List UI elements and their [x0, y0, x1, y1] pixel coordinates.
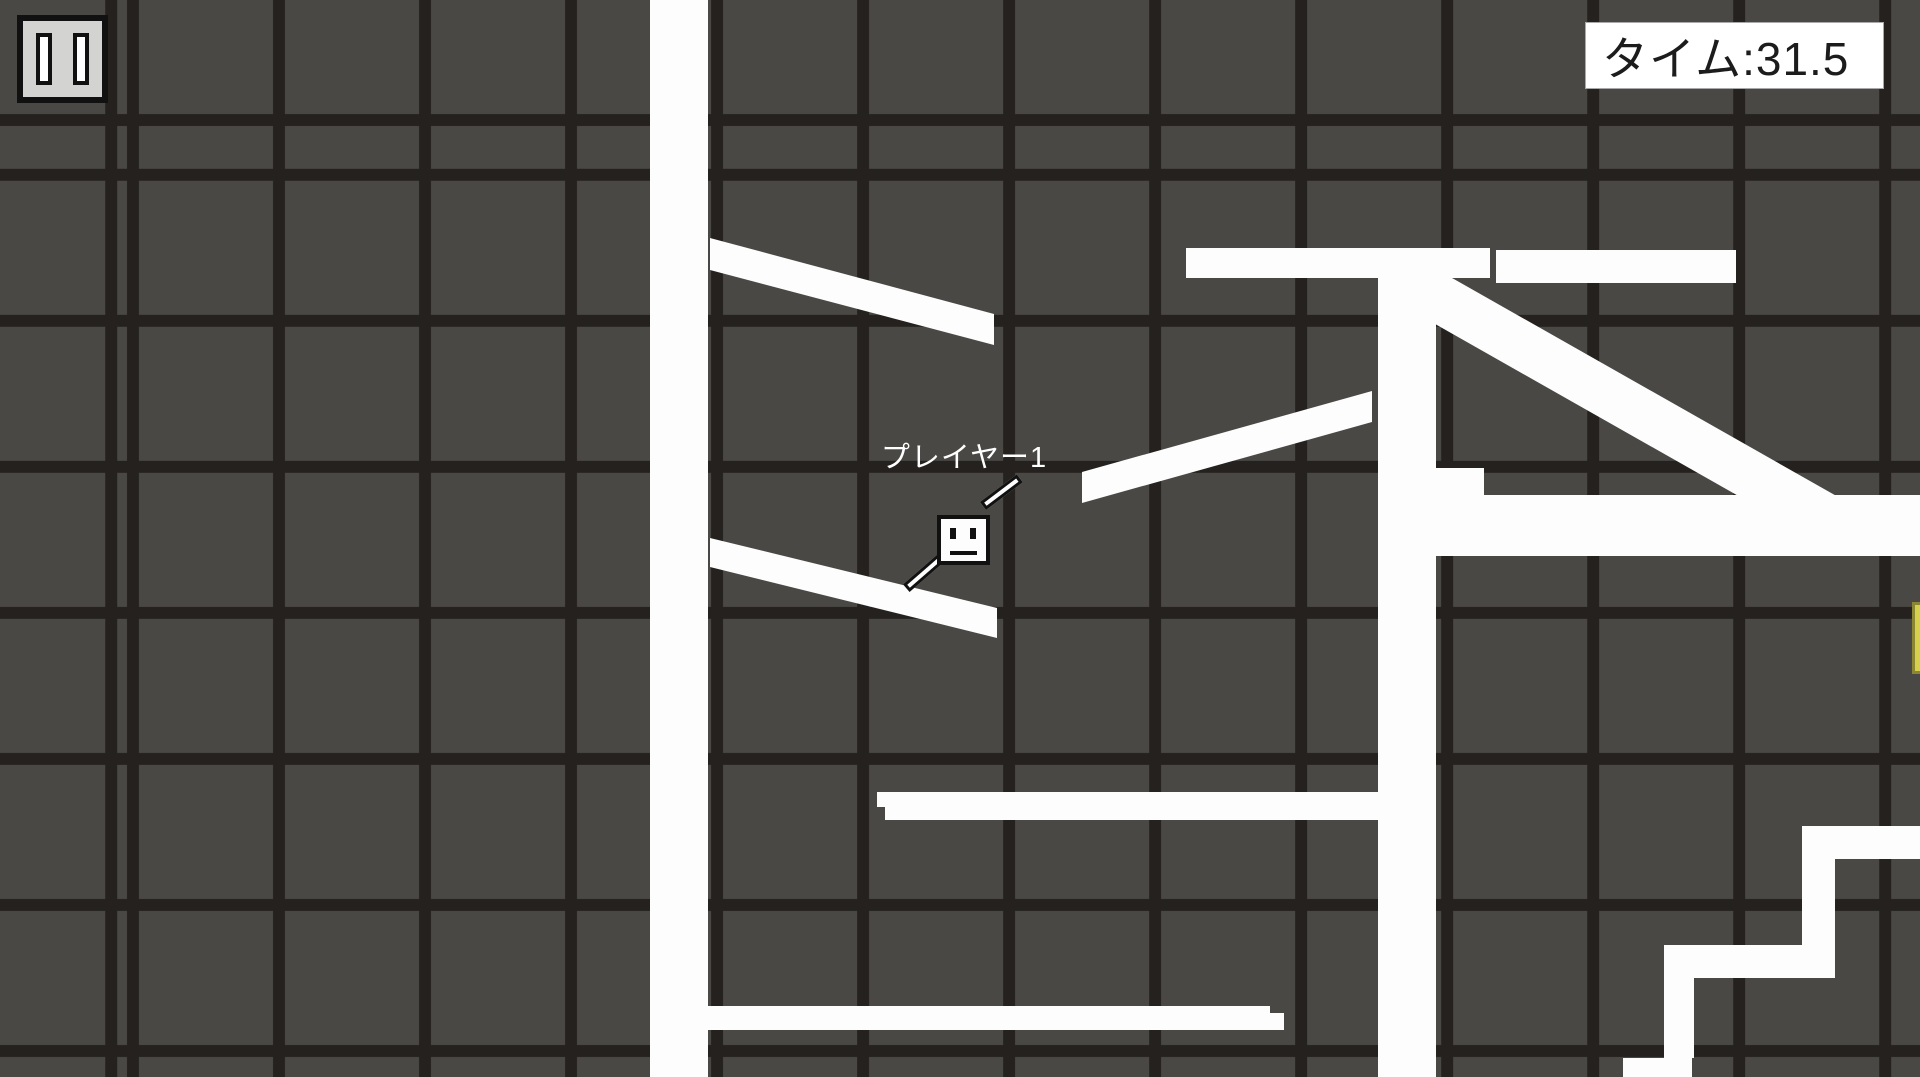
pause-button[interactable] — [17, 15, 108, 103]
right-band-step — [1436, 468, 1484, 496]
right-column — [1378, 250, 1436, 1077]
player-mouth — [950, 551, 977, 555]
player-eye-left — [950, 528, 956, 539]
pause-icon — [73, 33, 89, 85]
bottom-bar — [708, 1006, 1270, 1030]
timer-text: タイム:31.5 — [1586, 23, 1849, 89]
goal-item — [1912, 602, 1920, 674]
game-world: プレイヤー1 タイム:31.5 — [0, 0, 1920, 1077]
stair-low-tread — [1623, 1058, 1692, 1077]
player-body — [937, 515, 990, 565]
mid-bar-step — [877, 792, 888, 807]
player-name-label: プレイヤー1 — [864, 434, 1064, 476]
ramp-middle — [1082, 391, 1372, 503]
mid-bar — [885, 792, 1378, 820]
stair-mid-tread — [1692, 945, 1835, 978]
player-eye-right — [970, 528, 976, 539]
top-bar-left — [1186, 248, 1490, 278]
left-column — [650, 0, 708, 1077]
right-band — [1436, 495, 1920, 556]
top-bar-right — [1496, 250, 1736, 283]
stair-riser-2 — [1664, 945, 1694, 1058]
bottom-bar-step — [1268, 1013, 1284, 1030]
player-arm-right — [980, 474, 1023, 510]
ramp-upper-left — [710, 238, 994, 345]
pause-icon — [36, 33, 52, 85]
timer-panel: タイム:31.5 — [1585, 22, 1884, 89]
